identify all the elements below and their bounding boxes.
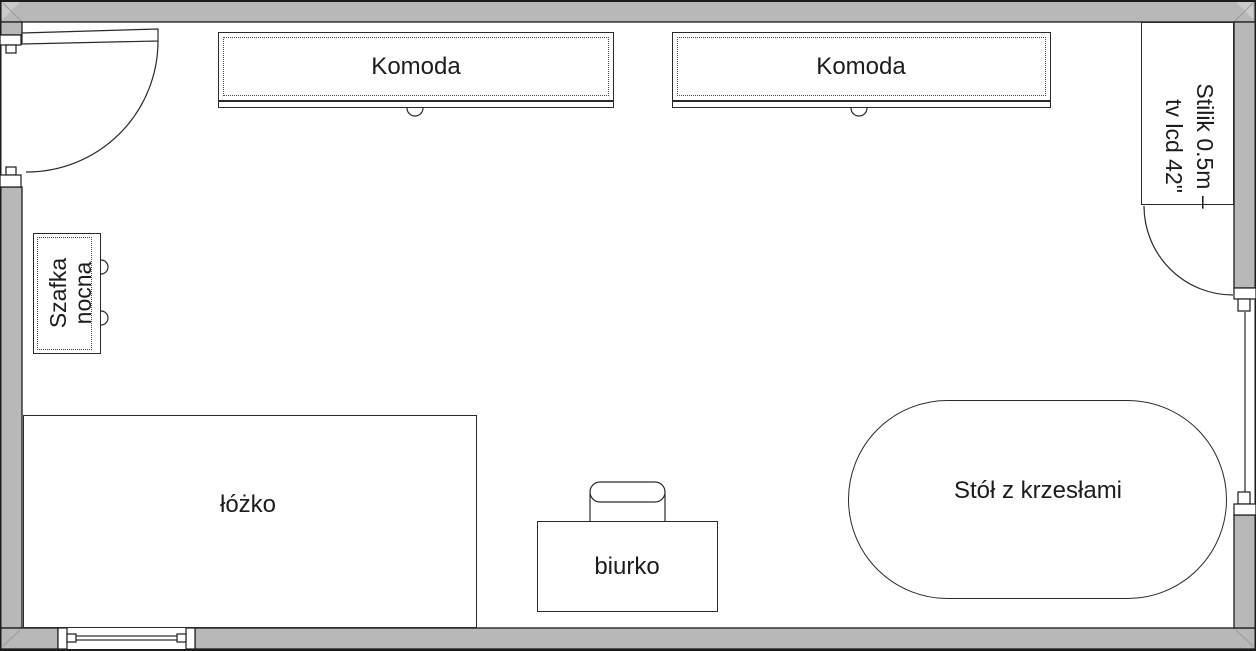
furniture-lozko[interactable] <box>23 415 477 628</box>
frame-top-edge <box>0 0 1256 2</box>
stol-label: Stół z krzesłami <box>954 478 1122 504</box>
door-left-top-stop <box>6 45 16 53</box>
desk-chair[interactable] <box>590 482 665 522</box>
door-left-leaf <box>22 29 158 44</box>
wall-bottom-left <box>0 628 58 649</box>
komoda-1-front-edge <box>218 101 614 108</box>
frame-left-edge <box>0 0 2 651</box>
window-right-block <box>177 634 186 642</box>
window[interactable] <box>58 628 195 649</box>
stolik-label-line2: tv lcd 42" <box>1161 99 1187 193</box>
door-right-swing-arc <box>1144 206 1233 295</box>
door-right-bottom-jamb <box>1234 504 1256 515</box>
wall-top <box>0 1 1256 22</box>
komoda-2-label: Komoda <box>816 54 905 80</box>
door-right-bottom-stop <box>1238 492 1250 504</box>
szafka-label-line1: Szafka <box>45 258 71 328</box>
door-right-top-stop <box>1238 299 1250 311</box>
komoda-2-front-edge <box>672 101 1051 108</box>
window-left-post <box>58 628 67 649</box>
szafka-nocna-label: Szafkanocna <box>46 258 96 328</box>
door-left-swing-arc <box>26 41 158 172</box>
szafka-knob-bottom <box>101 311 108 325</box>
window-pane <box>76 636 177 640</box>
stolik-tv-label: Stilik 0.5m –tv lcd 42" <box>1158 83 1220 208</box>
komoda-1-knob <box>407 108 423 116</box>
floorplan-canvas: Komoda Komoda Szafkanocna łóżko biurko S… <box>0 0 1256 651</box>
door-left-bottom-jamb <box>0 175 21 187</box>
biurko-label: biurko <box>594 554 659 580</box>
wall-right-lower <box>1234 515 1256 628</box>
door-left[interactable] <box>0 29 158 187</box>
wall-left-upper-stub <box>0 22 22 35</box>
door-left-top-jamb <box>0 35 21 45</box>
chair-backrest <box>590 482 665 502</box>
szafka-label-line2: nocna <box>70 262 96 325</box>
wall-right-upper <box>1234 22 1256 288</box>
window-right-post <box>186 628 195 649</box>
szafka-knob-top <box>101 260 108 274</box>
wall-bottom-main <box>195 628 1256 649</box>
stolik-label-line1: Stilik 0.5m – <box>1192 83 1218 208</box>
wall-left-main <box>0 187 22 628</box>
door-right-top-jamb <box>1234 288 1256 299</box>
lozko-label: łóżko <box>220 492 276 518</box>
door-left-bottom-stop <box>6 167 16 175</box>
komoda-2-knob <box>851 108 867 116</box>
komoda-1-label: Komoda <box>371 54 460 80</box>
window-left-block <box>67 634 76 642</box>
